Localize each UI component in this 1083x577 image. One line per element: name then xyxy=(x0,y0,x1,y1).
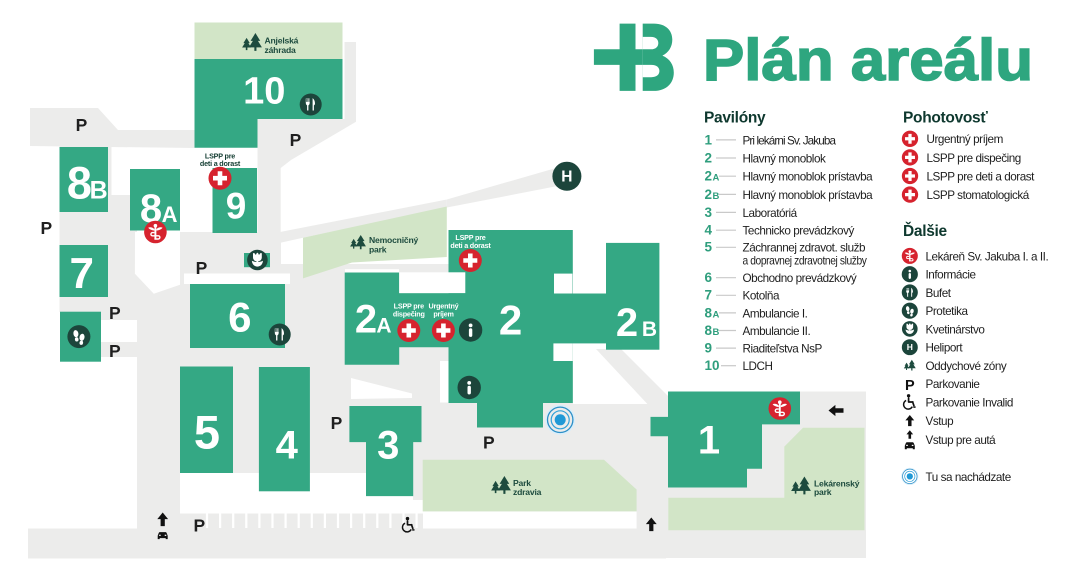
svg-text:deti a dorast: deti a dorast xyxy=(450,241,491,250)
svg-text:Obchodno prevádzkový: Obchodno prevádzkový xyxy=(743,272,857,285)
svg-text:2: 2 xyxy=(355,297,377,341)
svg-text:P: P xyxy=(290,130,302,150)
svg-text:Vstup: Vstup xyxy=(926,415,955,428)
svg-text:záhrada: záhrada xyxy=(265,45,296,55)
svg-text:Parkovanie: Parkovanie xyxy=(926,378,980,391)
svg-text:park: park xyxy=(369,245,387,255)
svg-text:Kotolňa: Kotolňa xyxy=(743,290,780,303)
svg-text:P: P xyxy=(193,516,205,536)
svg-text:Ambulancie I.: Ambulancie I. xyxy=(743,307,808,320)
svg-text:P: P xyxy=(76,115,88,135)
svg-text:2: 2 xyxy=(705,187,713,202)
svg-text:6: 6 xyxy=(705,270,713,285)
svg-text:Hlavný monoblok prístavba: Hlavný monoblok prístavba xyxy=(743,171,874,184)
svg-text:2: 2 xyxy=(499,296,522,343)
svg-text:2: 2 xyxy=(616,301,638,345)
svg-text:Hlavný monoblok: Hlavný monoblok xyxy=(743,152,827,165)
svg-text:1: 1 xyxy=(705,132,713,147)
svg-text:P: P xyxy=(109,341,121,361)
svg-text:Plán areálu: Plán areálu xyxy=(703,28,1033,93)
svg-text:Ďalšie: Ďalšie xyxy=(903,222,948,240)
svg-text:7: 7 xyxy=(70,249,94,298)
svg-text:7: 7 xyxy=(705,288,713,303)
svg-text:P: P xyxy=(196,258,208,278)
svg-text:Heliport: Heliport xyxy=(926,342,964,355)
svg-text:A: A xyxy=(713,309,720,320)
svg-text:Kvetinárstvo: Kvetinárstvo xyxy=(926,323,986,336)
svg-text:dispečing: dispečing xyxy=(393,310,425,319)
svg-text:a dopravnej zdravotnej služby: a dopravnej zdravotnej služby xyxy=(743,255,868,268)
svg-text:6: 6 xyxy=(228,293,251,340)
svg-text:5: 5 xyxy=(705,240,713,255)
svg-text:LDCH: LDCH xyxy=(743,360,773,373)
svg-text:Oddychové zóny: Oddychové zóny xyxy=(926,360,1007,373)
svg-text:8: 8 xyxy=(705,305,713,320)
svg-text:5: 5 xyxy=(194,406,220,459)
svg-text:P: P xyxy=(905,378,915,394)
svg-text:Pohotovosť: Pohotovosť xyxy=(903,110,988,127)
svg-text:Pavilóny: Pavilóny xyxy=(704,110,766,127)
svg-text:9: 9 xyxy=(705,341,713,356)
svg-text:10: 10 xyxy=(705,358,720,373)
svg-text:príjem: príjem xyxy=(433,310,453,319)
svg-text:Urgentný príjem: Urgentný príjem xyxy=(927,133,1003,146)
svg-text:Lekáreň Sv. Jakuba I. a II.: Lekáreň Sv. Jakuba I. a II. xyxy=(926,250,1049,263)
svg-text:Technicko prevádzkový: Technicko prevádzkový xyxy=(743,225,855,238)
svg-text:zdravia: zdravia xyxy=(513,487,542,497)
svg-text:A: A xyxy=(713,173,720,184)
svg-text:4: 4 xyxy=(276,423,299,467)
svg-text:A: A xyxy=(376,314,391,337)
svg-text:P: P xyxy=(109,303,121,323)
svg-text:LSPP stomatologická: LSPP stomatologická xyxy=(927,189,1030,202)
svg-text:Parkovanie Invalid: Parkovanie Invalid xyxy=(926,397,1013,410)
svg-text:3: 3 xyxy=(377,424,399,468)
svg-text:B: B xyxy=(713,191,720,202)
svg-text:Vstup pre autá: Vstup pre autá xyxy=(926,434,997,447)
svg-text:B: B xyxy=(713,327,720,338)
svg-text:Ambulancie II.: Ambulancie II. xyxy=(743,325,811,338)
svg-text:Anjelská: Anjelská xyxy=(265,36,299,46)
svg-text:8: 8 xyxy=(67,158,92,209)
svg-text:Pri lekárni Sv. Jakuba: Pri lekárni Sv. Jakuba xyxy=(743,134,837,147)
svg-text:3: 3 xyxy=(705,205,713,220)
svg-text:9: 9 xyxy=(226,185,247,226)
svg-text:Hlavný monoblok prístavba: Hlavný monoblok prístavba xyxy=(743,189,874,202)
svg-text:Informácie: Informácie xyxy=(926,269,976,282)
svg-text:LSPP pre dispečing: LSPP pre dispečing xyxy=(927,152,1021,165)
svg-text:4: 4 xyxy=(705,223,713,238)
svg-text:Tu sa nachádzate: Tu sa nachádzate xyxy=(926,471,1011,484)
svg-text:B: B xyxy=(642,318,657,341)
svg-text:P: P xyxy=(331,413,343,433)
svg-text:Nemocničný: Nemocničný xyxy=(369,235,419,245)
svg-text:1: 1 xyxy=(698,418,720,462)
svg-text:LSPP pre deti a dorast: LSPP pre deti a dorast xyxy=(927,170,1036,183)
svg-text:Protetika: Protetika xyxy=(926,305,969,318)
svg-text:B: B xyxy=(90,177,108,205)
svg-text:P: P xyxy=(483,433,495,453)
svg-text:A: A xyxy=(162,202,178,227)
svg-text:Riaditeľstva NsP: Riaditeľstva NsP xyxy=(743,343,823,356)
svg-text:P: P xyxy=(41,218,53,238)
svg-text:Bufet: Bufet xyxy=(926,287,952,300)
svg-text:Laboratóriá: Laboratóriá xyxy=(743,207,798,220)
svg-text:2: 2 xyxy=(705,150,713,165)
svg-text:2: 2 xyxy=(705,169,713,184)
svg-text:Záchrannej zdravot. služb: Záchrannej zdravot. služb xyxy=(743,242,867,255)
svg-text:8: 8 xyxy=(705,323,713,338)
svg-text:10: 10 xyxy=(243,71,285,113)
svg-text:park: park xyxy=(814,487,832,497)
